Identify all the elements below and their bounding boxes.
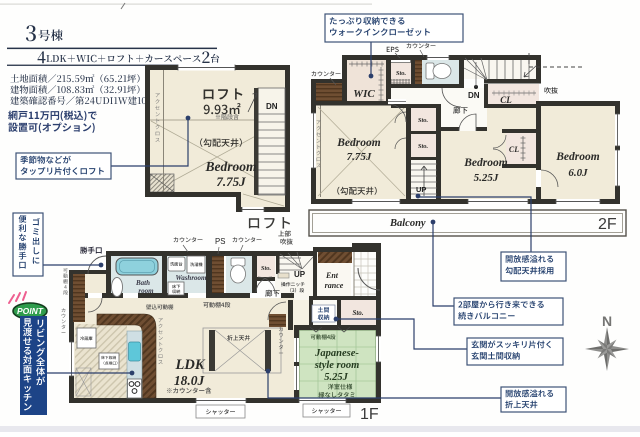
- svg-text:6.0J: 6.0J: [568, 167, 588, 179]
- svg-text:rance: rance: [325, 281, 344, 290]
- svg-text:Sto.: Sto.: [352, 309, 363, 317]
- svg-text:Bedroom: Bedroom: [463, 157, 508, 169]
- svg-text:Bedroom: Bedroom: [204, 159, 256, 174]
- svg-text:Bedroom: Bedroom: [336, 137, 381, 149]
- svg-text:DN: DN: [468, 91, 480, 100]
- svg-text:Sto.: Sto.: [396, 70, 407, 77]
- svg-text:N: N: [602, 313, 612, 329]
- svg-text:7.75J: 7.75J: [216, 174, 246, 189]
- svg-text:18.0J: 18.0J: [174, 373, 206, 388]
- svg-text:style room: style room: [314, 360, 360, 371]
- svg-text:7.75J: 7.75J: [347, 151, 372, 163]
- svg-text:WIC: WIC: [353, 88, 375, 100]
- svg-text:Balcony: Balcony: [389, 218, 426, 229]
- svg-text:PS: PS: [215, 237, 225, 246]
- svg-text:CL: CL: [500, 95, 512, 105]
- svg-text:Bedroom: Bedroom: [555, 151, 600, 163]
- svg-text:DN: DN: [266, 102, 278, 111]
- svg-text:Washroom: Washroom: [176, 274, 208, 282]
- svg-text:Japanese-: Japanese-: [314, 348, 359, 359]
- svg-text:LDK: LDK: [175, 357, 206, 373]
- svg-text:CL: CL: [509, 145, 519, 154]
- svg-text:UP: UP: [294, 270, 306, 279]
- svg-text:Sto.: Sto.: [261, 265, 272, 272]
- svg-text:Sto.: Sto.: [418, 143, 429, 150]
- svg-text:Ent: Ent: [325, 271, 339, 280]
- svg-text:POINT: POINT: [17, 306, 44, 316]
- svg-text:1F: 1F: [360, 406, 379, 423]
- svg-text:2F: 2F: [598, 216, 617, 233]
- svg-text:UP: UP: [416, 185, 426, 194]
- svg-text:Sto.: Sto.: [418, 117, 429, 124]
- svg-text:5.25J: 5.25J: [474, 172, 499, 184]
- svg-text:Bath: Bath: [135, 279, 150, 287]
- svg-text:5.25J: 5.25J: [324, 372, 348, 383]
- svg-text:room: room: [138, 287, 154, 295]
